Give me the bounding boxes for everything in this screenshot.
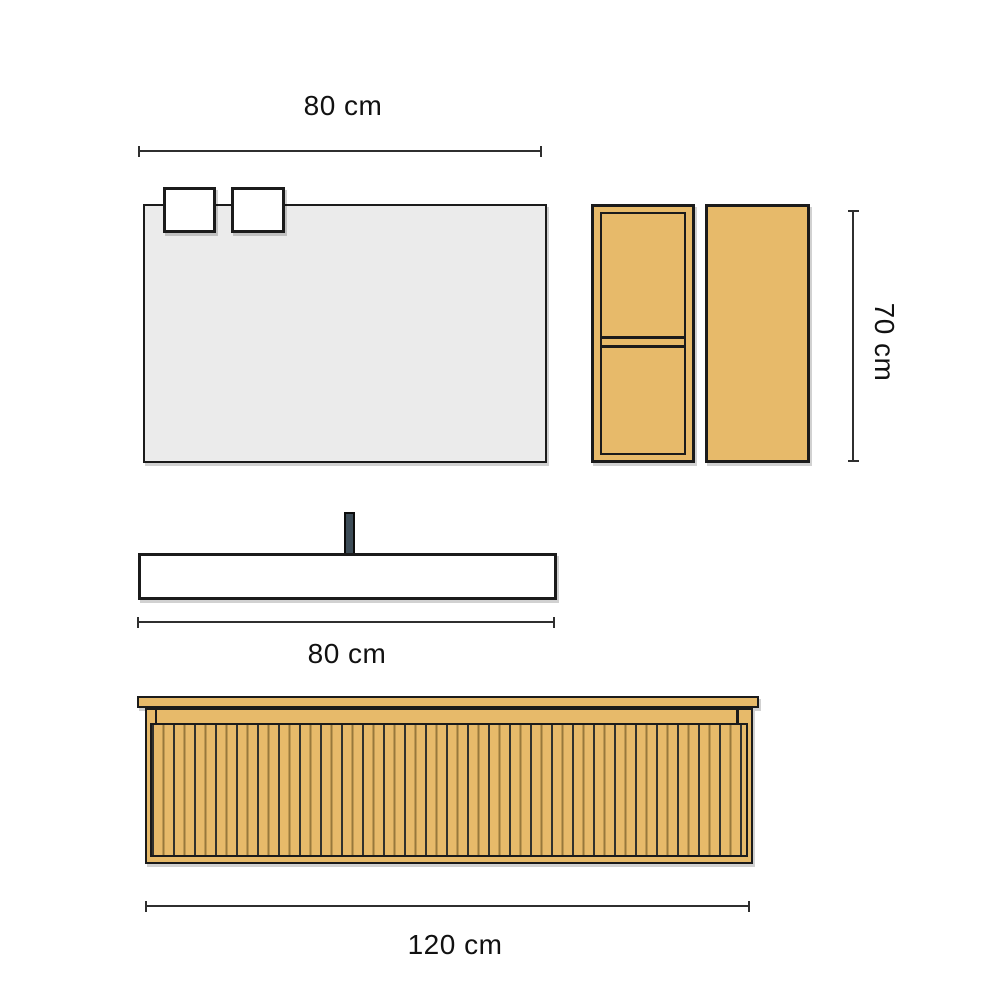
mirror: [143, 204, 547, 463]
dim-tick: [145, 901, 147, 912]
dimension-line-cabinet-height: [852, 210, 854, 462]
dim-tick: [848, 210, 859, 212]
dimension-line-basin-width: [137, 621, 555, 623]
dim-tick: [748, 901, 750, 912]
washbasin: [138, 553, 557, 600]
shelf-line: [602, 336, 684, 339]
dimension-line-vanity-width: [145, 905, 750, 907]
dimension-label-mirror-width: 80 cm: [304, 90, 383, 122]
dim-tick: [848, 460, 859, 462]
diagram-canvas: 80 cm 70 cm 80 cm 120 cm: [0, 0, 1000, 1000]
dimension-label-cabinet-height: 70 cm: [868, 303, 900, 382]
mirror-light-2: [231, 187, 285, 233]
mirror-light-1: [163, 187, 216, 233]
faucet: [344, 512, 355, 555]
shelf-line: [602, 345, 684, 348]
dim-tick: [553, 617, 555, 628]
dimension-label-basin-width: 80 cm: [308, 638, 387, 670]
wall-cabinet-closed: [705, 204, 810, 463]
countertop: [137, 696, 759, 708]
dimension-line-mirror-width: [138, 150, 542, 152]
dimension-label-vanity-width: 120 cm: [408, 929, 503, 961]
fluted-front-panel: [150, 723, 748, 857]
dim-tick: [137, 617, 139, 628]
dim-tick: [138, 146, 140, 157]
cabinet-interior: [600, 212, 686, 455]
vanity-cabinet: [145, 708, 753, 864]
dim-tick: [540, 146, 542, 157]
wall-cabinet-open: [591, 204, 695, 463]
